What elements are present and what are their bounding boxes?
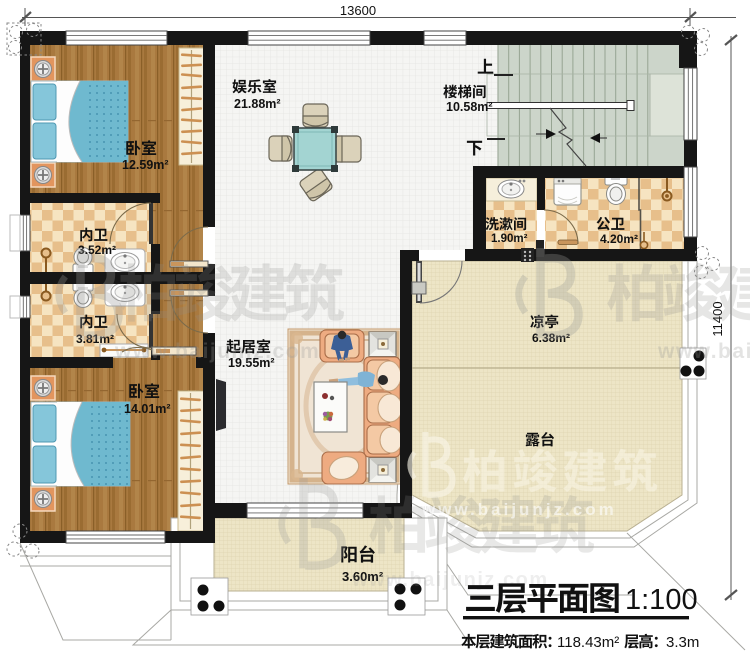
svg-text:www.baijunjz.com: www.baijunjz.com bbox=[114, 340, 320, 363]
svg-text:14.01m²: 14.01m² bbox=[124, 402, 171, 416]
svg-text:12.59m²: 12.59m² bbox=[122, 158, 169, 172]
svg-text:3.3m: 3.3m bbox=[666, 634, 699, 651]
svg-text:www.baijunjz.com: www.baijunjz.com bbox=[657, 340, 750, 363]
svg-text:www.baijunjz.com: www.baijunjz.com bbox=[351, 569, 549, 591]
svg-text:21.88m²: 21.88m² bbox=[234, 97, 281, 111]
svg-text:1:100: 1:100 bbox=[625, 584, 698, 616]
svg-text:4.20m²: 4.20m² bbox=[600, 232, 638, 246]
svg-text:10.58m²: 10.58m² bbox=[446, 100, 493, 114]
svg-text:118.43m²: 118.43m² bbox=[557, 634, 619, 651]
svg-text:13600: 13600 bbox=[340, 3, 376, 18]
svg-text:1.90m²: 1.90m² bbox=[491, 233, 528, 245]
svg-text:www.baijunjz.com: www.baijunjz.com bbox=[421, 500, 617, 519]
